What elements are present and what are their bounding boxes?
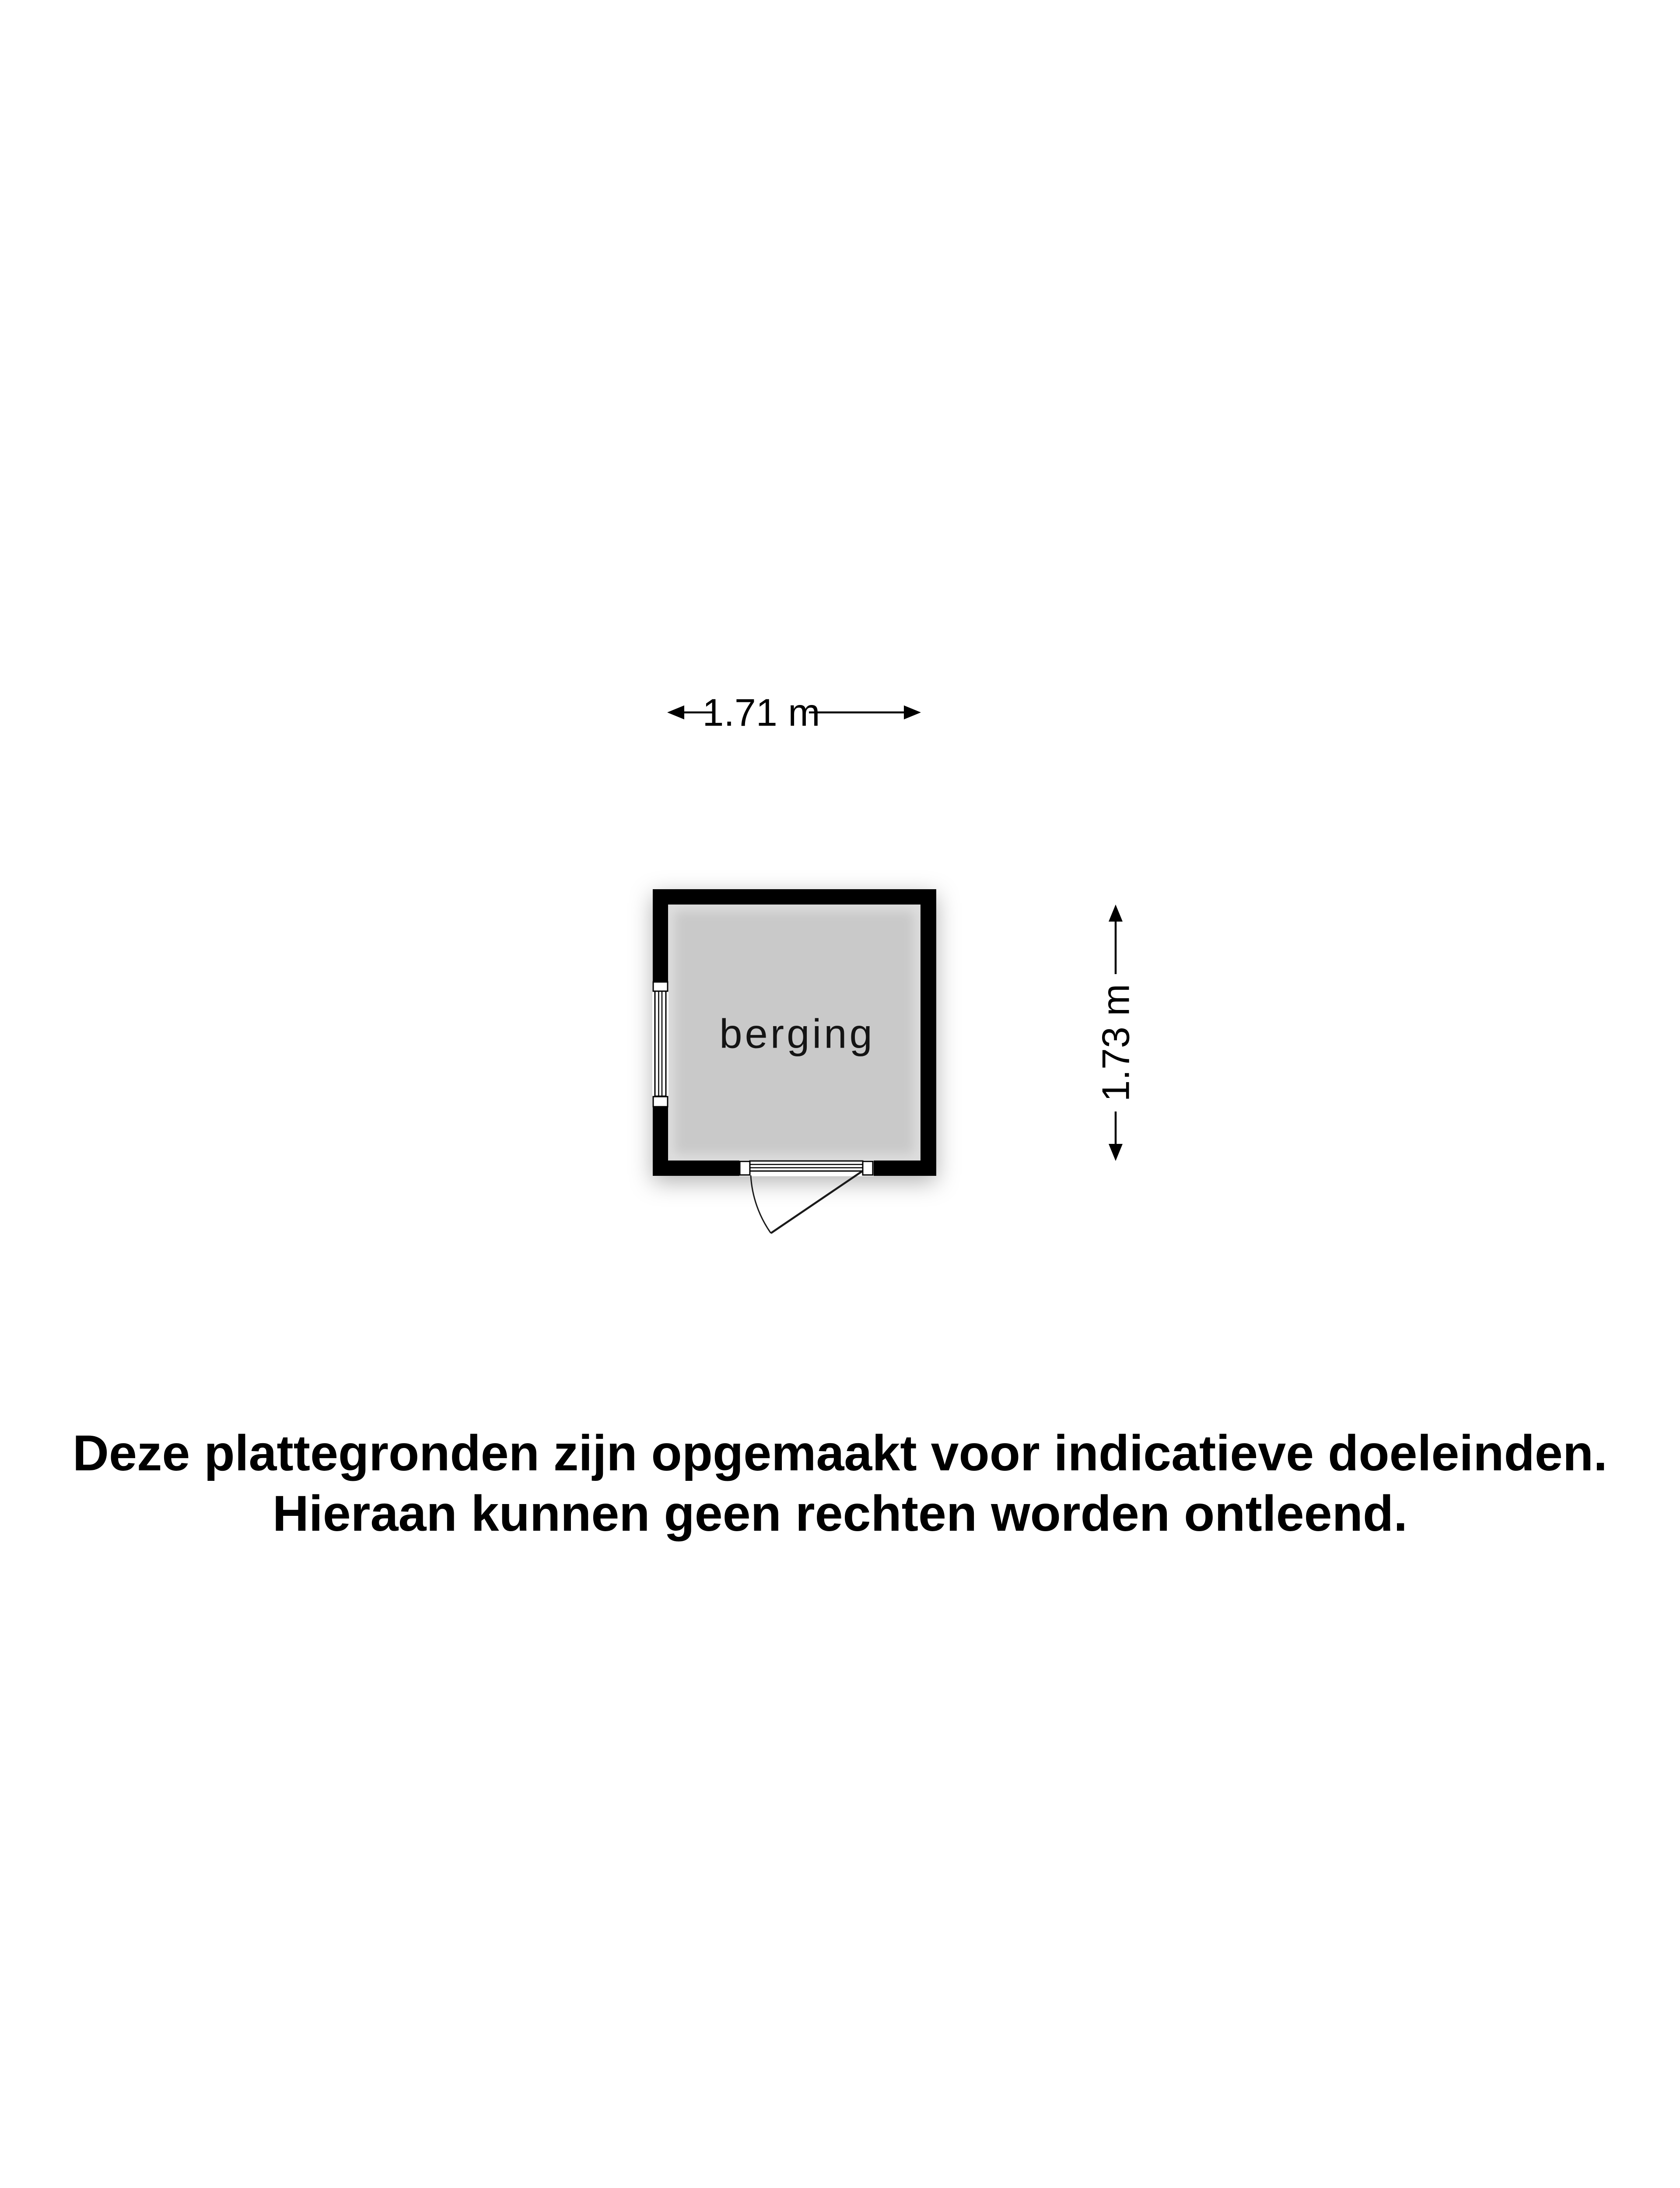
floor-plan: berging 1.71 m 1.73 m — [0, 0, 1680, 2188]
dimension-height: 1.73 m — [1094, 905, 1137, 1161]
window-jamb-bottom — [653, 1097, 668, 1107]
door-bottom — [739, 1160, 874, 1233]
door-threshold-frame — [750, 1161, 863, 1171]
room-label: berging — [719, 1011, 875, 1057]
door-jamb-left — [740, 1161, 750, 1175]
window-glazing-frame — [655, 991, 666, 1096]
arrow-left-icon — [667, 705, 684, 719]
disclaimer-line-1: Deze plattegronden zijn opgemaakt voor i… — [0, 1423, 1680, 1483]
door-panel-line — [771, 1171, 862, 1233]
dimension-width-label: 1.71 m — [702, 691, 820, 734]
arrow-down-icon — [1109, 1144, 1123, 1161]
window-jamb-top — [653, 982, 668, 991]
arrow-up-icon — [1109, 905, 1123, 922]
disclaimer-line-2: Hieraan kunnen geen rechten worden ontle… — [0, 1483, 1680, 1544]
door-jamb-right — [863, 1161, 873, 1175]
dimension-width: 1.71 m — [667, 691, 921, 734]
window-left — [652, 982, 668, 1107]
disclaimer: Deze plattegronden zijn opgemaakt voor i… — [0, 1423, 1680, 1544]
door-swing-arc — [751, 1175, 771, 1233]
dimension-height-label: 1.73 m — [1094, 984, 1137, 1101]
arrow-right-icon — [904, 705, 921, 719]
